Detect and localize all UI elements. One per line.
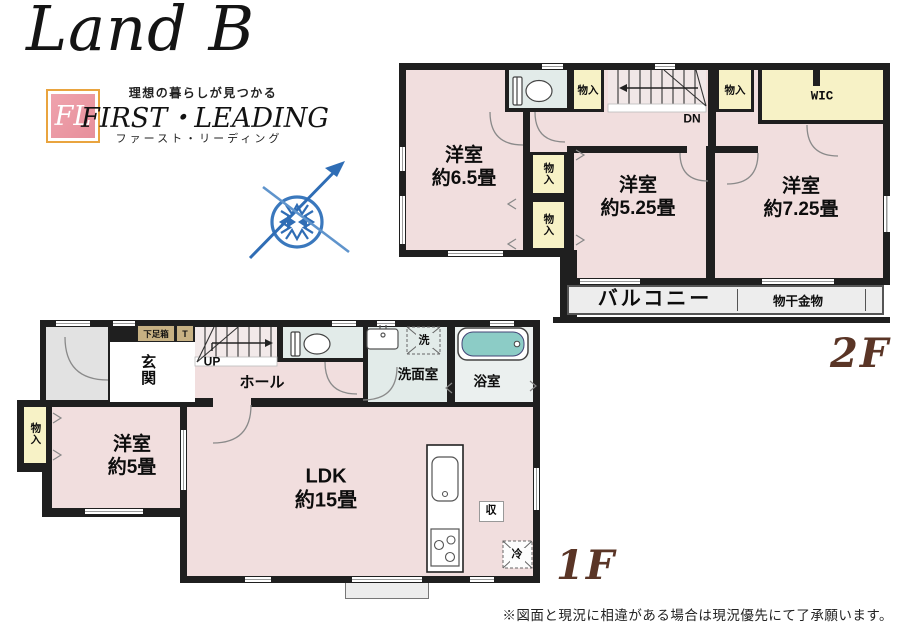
balcony-label: バルコニー [598, 287, 713, 311]
floorplan-canvas: Land B FL 理想の暮らしが見つかる FIRST・LEADING ファース… [0, 0, 900, 635]
room-label-1f-5: 洋室 約5畳 [108, 433, 157, 479]
window [245, 577, 271, 582]
shoe-box: 下足箱 [137, 325, 175, 342]
closet-label: 物入 [29, 423, 42, 446]
window [181, 430, 186, 490]
toilet-room-1f [283, 327, 363, 362]
window [377, 321, 395, 326]
door-gap-hall-ldk [213, 398, 251, 407]
window [580, 279, 640, 284]
bathroom [455, 327, 533, 402]
closet-label: 物入 [542, 163, 555, 186]
window [400, 147, 405, 171]
window [332, 321, 356, 326]
washroom [363, 327, 447, 402]
washroom-label: 洗面室 [398, 367, 439, 383]
window [85, 509, 143, 514]
hall-label: ホール [239, 374, 284, 392]
closet-label: 物入 [725, 85, 746, 98]
window [352, 577, 422, 582]
balcony-divider [737, 289, 738, 311]
porch [46, 327, 108, 400]
stairs-up-label: UP [204, 355, 221, 370]
window [490, 321, 514, 326]
window [56, 321, 90, 326]
entrance-label: 玄関 [138, 354, 156, 386]
floor-label-1f: 1F [556, 542, 616, 589]
stairs-2f [608, 70, 706, 112]
disclaimer-text: ※図面と現況に相違がある場合は現況優先にて了承願います。 [502, 604, 893, 624]
compass-icon [250, 161, 349, 258]
wall-2f-525-top [567, 146, 687, 153]
room-label-2f-525: 洋室 約5.25畳 [601, 174, 676, 220]
balcony-divider [865, 289, 866, 311]
closet-label: 物入 [578, 85, 599, 98]
room-label-2f-725: 洋室 約7.25畳 [764, 175, 839, 221]
wall-2f-725-top [715, 146, 758, 153]
washer-label: 洗 [419, 334, 430, 347]
toilet-room-2f [505, 70, 567, 112]
window [448, 251, 503, 256]
wall-2f-525-725 [706, 146, 715, 285]
window [113, 321, 135, 326]
brand-logo: Land B [26, 0, 255, 65]
window [762, 279, 834, 284]
shoe-box-t-label: T [182, 329, 188, 339]
stairs-dn-label: DN [683, 112, 700, 127]
drying-hardware-label: 物干金物 [773, 294, 823, 309]
room-label-2f-65: 洋室 約6.5畳 [432, 144, 496, 190]
storage-label: 収 [486, 504, 497, 517]
company-name-kana: ファースト・リーディング [116, 130, 283, 146]
room-label-ldk: LDK 約15畳 [295, 465, 357, 514]
window [884, 196, 890, 232]
wall-2f-balcony-bottom [553, 317, 890, 323]
closet-label: 物入 [542, 214, 555, 237]
shoe-box-label: 下足箱 [143, 328, 169, 340]
shoe-box-t: T [176, 325, 194, 342]
fridge-label: 冷 [512, 548, 523, 561]
wic-wall-stub [813, 63, 820, 86]
window [534, 468, 539, 510]
room-1f-ldk [187, 407, 533, 576]
bathroom-label: 浴室 [474, 374, 501, 390]
terrace-step [345, 583, 429, 599]
window [542, 64, 563, 69]
wic-label: WIC [811, 89, 834, 104]
wall-2f-stair-right [708, 63, 716, 153]
window [655, 64, 675, 69]
window [400, 196, 405, 244]
floor-label-2f: 2F [830, 330, 890, 377]
window [470, 577, 494, 582]
